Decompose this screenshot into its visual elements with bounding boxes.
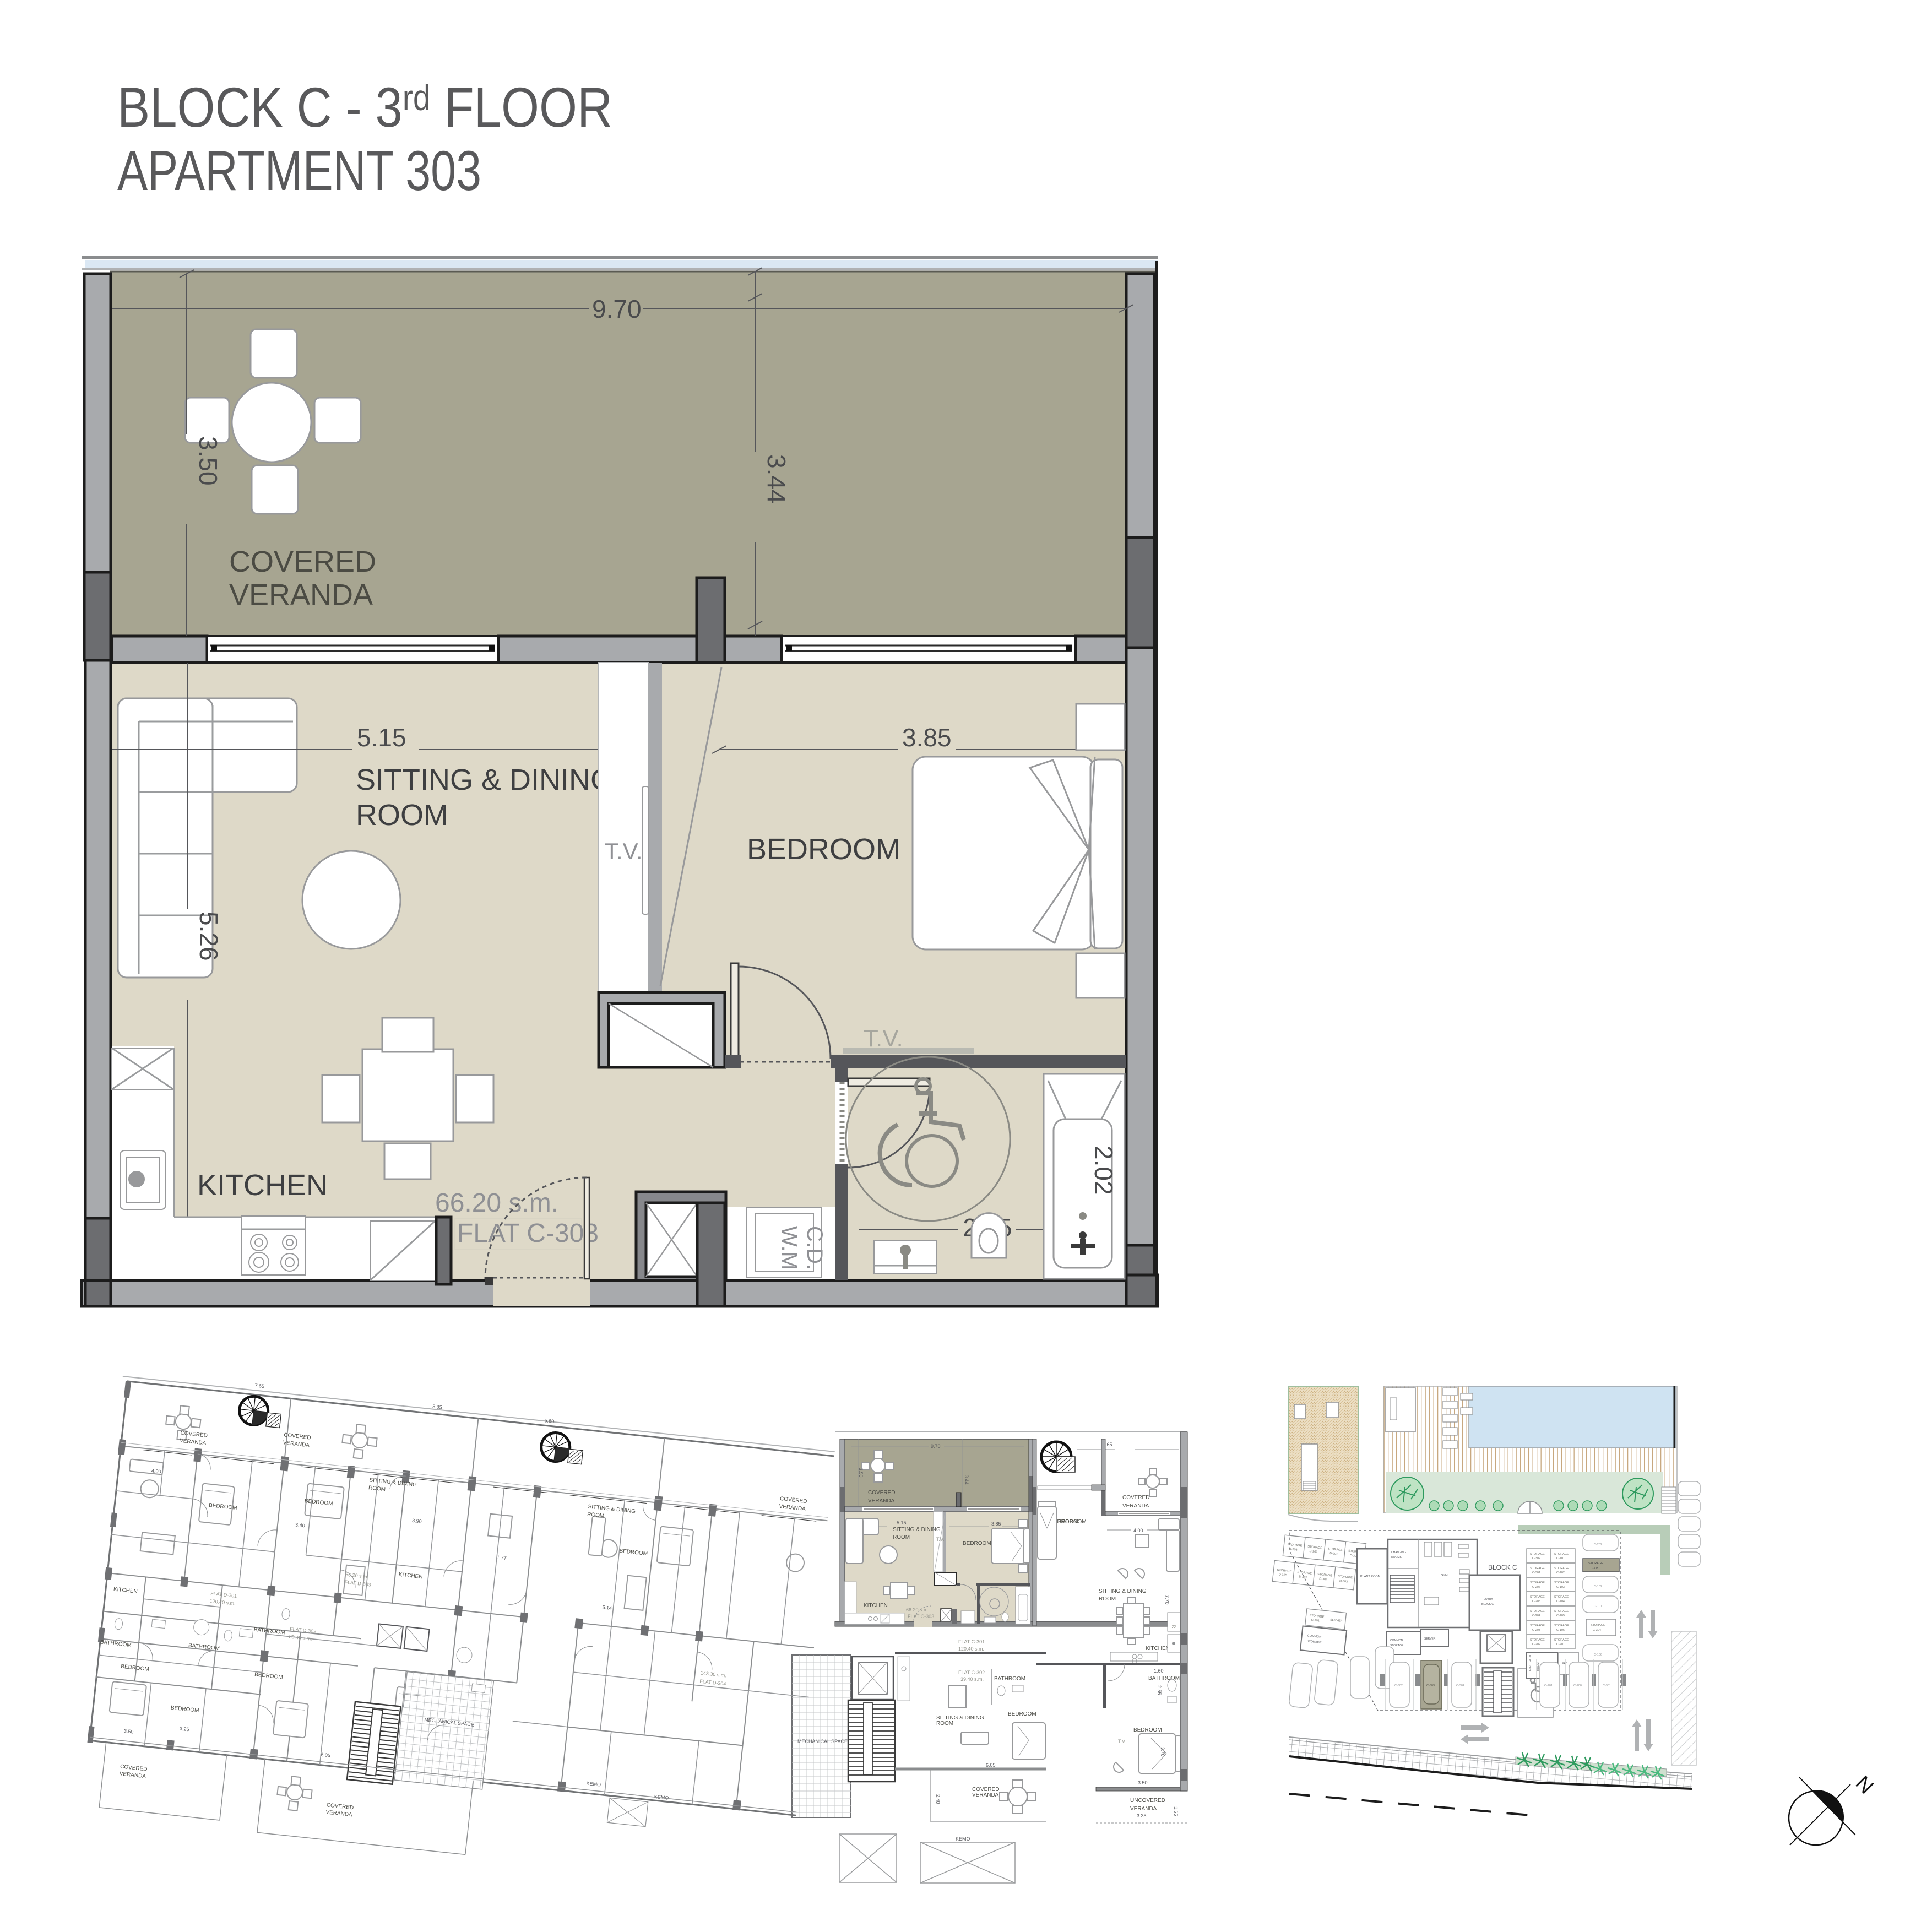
svg-text:STORAGE: STORAGE [1554,1624,1569,1627]
svg-text:ROOM: ROOM [1099,1596,1116,1602]
svg-text:C-103: C-103 [1556,1586,1565,1589]
svg-text:3.85: 3.85 [902,723,952,752]
svg-text:1.65: 1.65 [1173,1806,1179,1816]
svg-text:COVERED: COVERED [1122,1495,1149,1501]
svg-text:SITTING & DINING: SITTING & DINING [1099,1588,1147,1594]
svg-text:3.44: 3.44 [762,454,791,504]
svg-text:C-101: C-101 [1594,1605,1602,1608]
svg-text:6.05: 6.05 [986,1762,996,1768]
svg-text:7.65: 7.65 [254,1382,264,1389]
svg-text:ROOM: ROOM [356,799,448,832]
svg-text:C-106: C-106 [1556,1629,1565,1632]
svg-text:VERANDA: VERANDA [1122,1503,1149,1509]
svg-text:C-206: C-206 [1532,1586,1540,1589]
svg-text:3.25: 3.25 [180,1725,189,1732]
svg-text:C-201: C-201 [1544,1684,1553,1687]
svg-text:C-303: C-303 [1426,1684,1435,1687]
svg-text:BEDROOM: BEDROOM [963,1540,991,1546]
svg-text:STORAGE: STORAGE [1554,1638,1569,1642]
svg-text:COMMON: COMMON [1390,1639,1403,1642]
svg-text:STORAGE: STORAGE [1530,1610,1545,1613]
svg-text:PLANT ROOM: PLANT ROOM [1360,1575,1381,1578]
svg-text:BEDROOM: BEDROOM [747,833,900,866]
svg-text:BEDROOM: BEDROOM [1008,1711,1036,1717]
svg-text:FLAT C-303: FLAT C-303 [457,1219,599,1248]
svg-text:C-205: C-205 [1532,1600,1540,1603]
svg-text:ROOMS: ROOMS [1391,1556,1402,1559]
svg-text:STORAGE: STORAGE [1554,1553,1569,1556]
svg-text:5.60: 5.60 [544,1418,554,1424]
svg-text:39.40 s.m.: 39.40 s.m. [960,1676,984,1682]
svg-text:C-203: C-203 [1532,1629,1540,1632]
svg-text:VERANDA: VERANDA [229,578,373,611]
svg-text:C-105: C-105 [1556,1614,1565,1618]
svg-text:C-303: C-303 [1591,1567,1598,1570]
svg-text:BEDROOM: BEDROOM [1058,1519,1087,1525]
svg-text:3.44: 3.44 [964,1475,969,1485]
svg-text:C-301: C-301 [1603,1684,1611,1687]
svg-text:3.85: 3.85 [991,1521,1001,1527]
svg-text:STORAGE: STORAGE [1530,1553,1545,1556]
svg-text:3.50: 3.50 [124,1728,134,1735]
svg-text:ROOM: ROOM [936,1721,953,1727]
svg-text:STORAGE: STORAGE [1554,1581,1569,1584]
svg-text:4.00: 4.00 [1133,1528,1143,1533]
svg-text:LOBBY: LOBBY [1484,1598,1493,1601]
svg-text:66.20 s.m.: 66.20 s.m. [906,1607,929,1613]
svg-text:VERANDA: VERANDA [972,1792,999,1798]
svg-text:5.14: 5.14 [602,1604,612,1611]
svg-text:STORAGE: STORAGE [1530,1638,1545,1642]
svg-text:STORAGE: STORAGE [1588,1562,1603,1565]
svg-text:9.70: 9.70 [931,1443,941,1449]
svg-text:5.15: 5.15 [897,1520,907,1526]
svg-text:FLAT C-303: FLAT C-303 [908,1614,934,1619]
svg-text:9.70: 9.70 [592,295,642,323]
svg-text:ROOM: ROOM [893,1534,910,1540]
svg-text:BLOCK C - 3rd FLOOR: BLOCK C - 3rd FLOOR [117,76,612,139]
svg-text:3.90: 3.90 [412,1518,422,1524]
svg-text:KITCHEN: KITCHEN [197,1169,328,1202]
svg-text:T.V.: T.V. [864,1025,903,1052]
svg-text:STORAGE: STORAGE [1554,1610,1569,1613]
svg-text:T.V.: T.V. [605,838,643,864]
svg-text:STORAGE: STORAGE [1530,1624,1545,1627]
svg-text:KITCHEN: KITCHEN [1146,1646,1170,1652]
svg-text:ELECTRICAL: ELECTRICAL [1529,1654,1532,1671]
svg-text:SITTING & DINING: SITTING & DINING [356,763,614,796]
svg-text:C-301: C-301 [1532,1571,1540,1575]
svg-text:C-304: C-304 [1456,1684,1464,1687]
svg-text:FLAT C-301: FLAT C-301 [958,1639,985,1645]
svg-text:KEMO: KEMO [956,1836,970,1842]
svg-text:ROOM: ROOM [1537,1662,1540,1671]
svg-text:2.02: 2.02 [1089,1146,1118,1195]
svg-text:C-302: C-302 [1532,1557,1540,1560]
svg-text:C-202: C-202 [1594,1543,1602,1546]
svg-text:STORAGE: STORAGE [1591,1624,1605,1627]
svg-text:SERVER: SERVER [1424,1637,1436,1641]
svg-text:1.77: 1.77 [497,1554,507,1561]
svg-text:EAC: EAC [1562,1662,1568,1665]
svg-text:C-101: C-101 [1556,1557,1565,1560]
svg-text:STORAGE: STORAGE [1390,1644,1404,1647]
svg-text:STORAGE: STORAGE [1530,1567,1545,1570]
svg-text:BLOCK C: BLOCK C [1481,1603,1494,1606]
svg-text:C-202: C-202 [1532,1643,1540,1646]
svg-text:T.V.: T.V. [1118,1739,1126,1744]
svg-text:T.V.: T.V. [936,1537,945,1542]
svg-text:7.70: 7.70 [1164,1595,1170,1605]
svg-text:W.M: W.M [777,1226,801,1270]
svg-text:3.35: 3.35 [1137,1813,1147,1819]
svg-text:VERANDA: VERANDA [868,1498,895,1504]
svg-text:FLAT C-302: FLAT C-302 [958,1670,985,1675]
svg-text:STORAGE: STORAGE [1530,1595,1545,1599]
svg-text:C-304: C-304 [1593,1629,1601,1632]
svg-text:3.50: 3.50 [194,436,222,486]
svg-text:C-104: C-104 [1556,1600,1565,1603]
svg-text:2.40: 2.40 [935,1794,941,1804]
svg-text:VERANDA: VERANDA [1130,1806,1157,1812]
svg-text:3.40: 3.40 [295,1522,305,1529]
svg-text:C-302: C-302 [1394,1684,1403,1687]
svg-text:UNCOVERED: UNCOVERED [1130,1798,1165,1804]
svg-text:3.85: 3.85 [432,1404,442,1410]
svg-text:GYM: GYM [1441,1574,1448,1577]
svg-text:6.05: 6.05 [321,1752,330,1759]
svg-text:120.40 s.m.: 120.40 s.m. [958,1646,984,1652]
svg-text:STORAGE: STORAGE [1554,1567,1569,1570]
svg-text:CHANGING: CHANGING [1391,1551,1406,1554]
svg-text:KITCHEN: KITCHEN [864,1603,888,1609]
svg-text:BLOCK C: BLOCK C [1488,1564,1517,1571]
svg-text:C-102: C-102 [1556,1571,1565,1575]
svg-text:C-106: C-106 [1594,1653,1602,1657]
svg-text:APARTMENT 303: APARTMENT 303 [117,139,481,202]
svg-text:SITTING & DINING: SITTING & DINING [893,1527,941,1533]
svg-text:C-201: C-201 [1556,1643,1565,1646]
svg-text:STORAGE: STORAGE [1530,1581,1545,1584]
svg-text:MECHANICAL SPACE: MECHANICAL SPACE [797,1739,848,1744]
svg-text:C-102: C-102 [1594,1585,1602,1588]
svg-text:BATHROOM: BATHROOM [994,1676,1025,1682]
svg-text:R: R [1171,1625,1176,1629]
svg-text:3.70: 3.70 [1160,1747,1165,1757]
svg-text:5.26: 5.26 [194,911,223,961]
svg-text:1.60: 1.60 [1154,1668,1164,1674]
svg-text:5.15: 5.15 [357,723,406,752]
svg-text:2.55: 2.55 [1157,1685,1162,1695]
svg-text:STORAGE: STORAGE [1554,1595,1569,1599]
svg-text:66.20 s.m.: 66.20 s.m. [435,1188,558,1218]
svg-text:COVERED: COVERED [868,1490,895,1496]
svg-text:3.50: 3.50 [858,1468,864,1478]
svg-text:C-200: C-200 [1573,1684,1582,1687]
svg-text:BEDROOM: BEDROOM [1133,1727,1162,1733]
svg-text:C-204: C-204 [1532,1614,1540,1618]
svg-text:C.D.: C.D. [802,1226,827,1270]
svg-text:3.50: 3.50 [1138,1780,1148,1786]
svg-text:4.00: 4.00 [151,1468,161,1474]
svg-text:COVERED: COVERED [229,545,376,578]
